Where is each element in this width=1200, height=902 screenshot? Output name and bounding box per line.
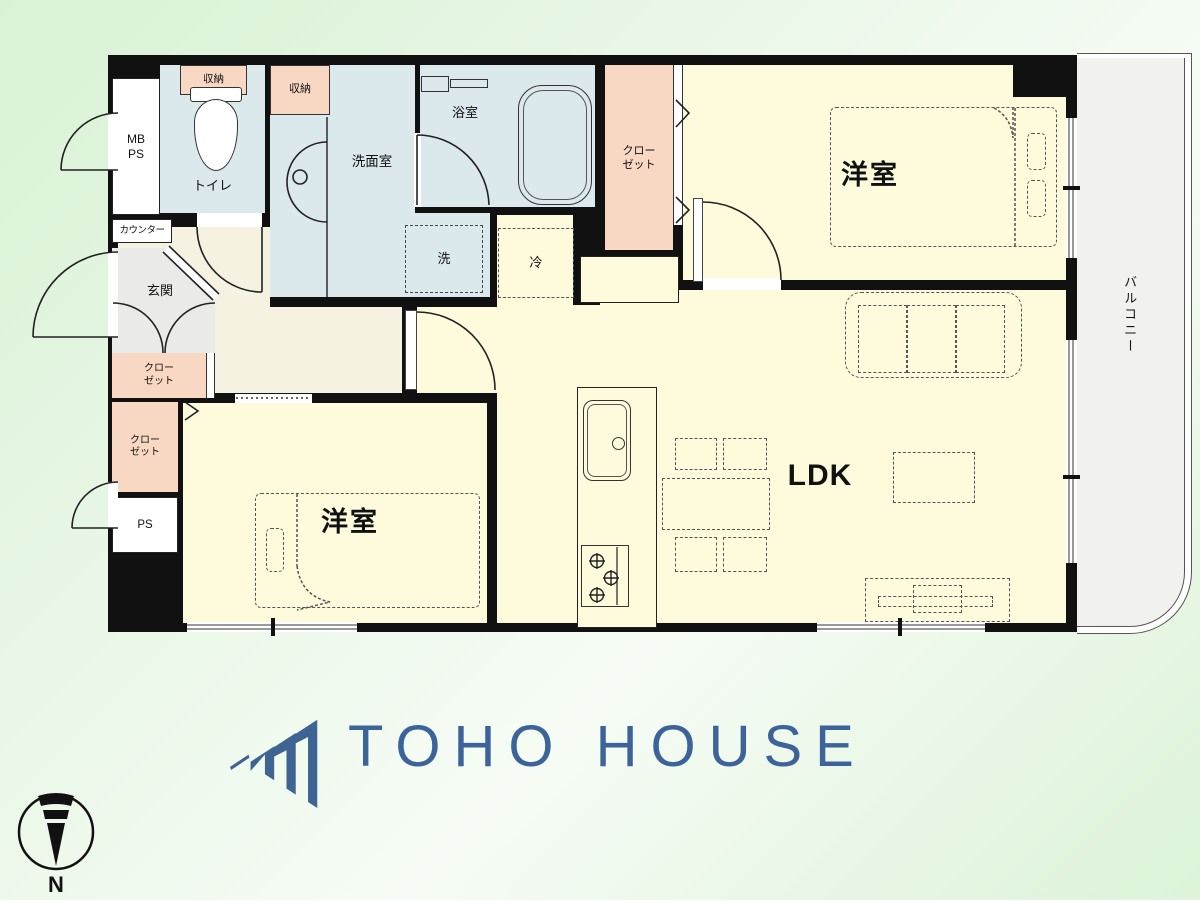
sliding-door-bedroom2 (235, 394, 312, 403)
storage-washroom-label: 収納 (270, 65, 330, 115)
kitchen-stove (581, 545, 629, 607)
hall-floor-b (270, 307, 402, 393)
closet-low-l2: ゼット (130, 447, 160, 460)
balcony-label: バルコニー (1112, 250, 1146, 380)
storage-toilet-label: 収納 (180, 65, 247, 95)
logo-text: TOHO HOUSE (348, 704, 948, 788)
mb-label: MB (127, 132, 145, 147)
wall-corner-topright (1013, 55, 1077, 97)
sofa-seat-2 (907, 305, 956, 373)
bedroom1-label: 洋室 (760, 158, 980, 194)
door-gap-toilet (197, 213, 262, 227)
closet-top-l2: ゼット (623, 159, 656, 173)
sofa-seat-1 (858, 305, 907, 373)
ldk-label: LDK (730, 458, 910, 494)
closet-mid-label: クロー ゼット (112, 353, 206, 398)
toilet-label: トイレ (160, 176, 265, 196)
mb-ps-label: MB PS (112, 78, 160, 215)
pillow-1a (1027, 133, 1046, 170)
closet-mid-l1: クロー (144, 363, 174, 376)
ldk-floor-b (417, 307, 600, 393)
fridge-label: 冷 (498, 228, 574, 298)
dining-chair-4 (723, 537, 767, 572)
compass-north-label: N (48, 872, 64, 897)
sofa-seat-3 (956, 305, 1005, 373)
kitchen-cabinet (580, 256, 679, 303)
floor-plan-page: MB PS 収納 トイレ 収納 洗面室 浴室 クロー ゼット カウンター 玄関 … (0, 0, 1200, 900)
bath-counter-b (450, 79, 488, 88)
counter-label: カウンター (112, 219, 172, 243)
bathtub-inner (523, 90, 587, 200)
compass-icon: N (8, 786, 108, 902)
logo-mark-icon (228, 692, 346, 810)
washer-label: 洗 (405, 225, 483, 293)
closet-mid-door (206, 353, 215, 398)
bedroom2-label: 洋室 (240, 505, 460, 541)
washroom-label: 洗面室 (312, 150, 432, 174)
ps-label: PS (112, 497, 178, 553)
bath-counter-a (421, 76, 449, 92)
window-bottom-bedroom2 (187, 622, 357, 632)
window-right-ldk (1066, 340, 1077, 563)
kitchen-faucet (612, 437, 625, 450)
door-leaf-bedroom1 (693, 198, 703, 282)
bathroom-label: 浴室 (415, 102, 515, 124)
mb-ps-label2: PS (128, 147, 144, 162)
closet-low-label: クロー ゼット (112, 402, 178, 492)
door-gap-bedroom1 (703, 278, 781, 290)
dining-chair-1 (675, 438, 717, 470)
pillow-1b (1027, 180, 1046, 217)
closet-low-l1: クロー (130, 435, 160, 448)
folding-door-strip (673, 65, 683, 225)
dining-chair-3 (675, 537, 717, 572)
door-gap-entrance (108, 252, 118, 337)
window-bottom-ldk (817, 622, 985, 632)
window-right-bedroom1 (1066, 118, 1077, 258)
closet-top-label: クロー ゼット (605, 65, 673, 252)
door-leaf-ldk (405, 310, 417, 390)
entrance-label: 玄関 (118, 281, 202, 301)
tv-center (913, 585, 962, 613)
closet-top-l1: クロー (623, 145, 656, 159)
closet-mid-l2: ゼット (144, 376, 174, 389)
